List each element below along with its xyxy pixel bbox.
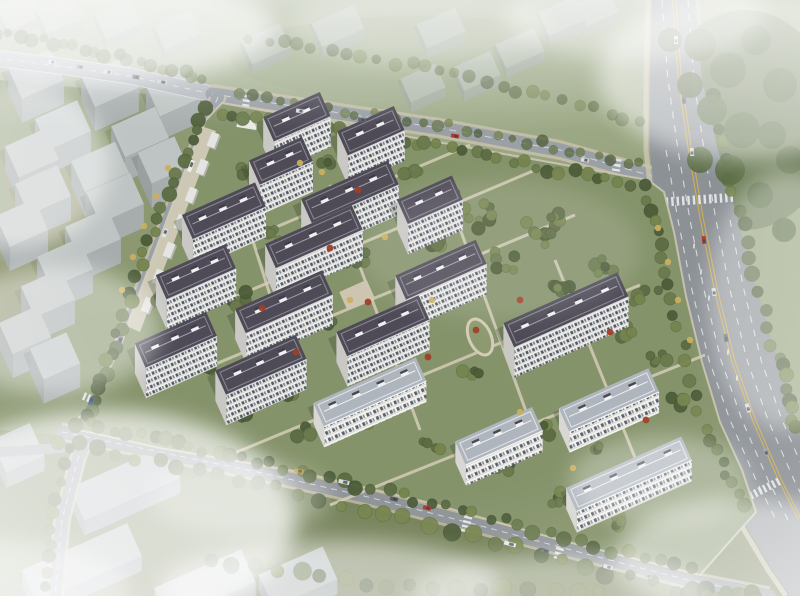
residential-complex-aerial-rendering xyxy=(0,0,800,596)
white-vignette xyxy=(0,0,800,596)
aerial-rendering-page xyxy=(0,0,800,596)
